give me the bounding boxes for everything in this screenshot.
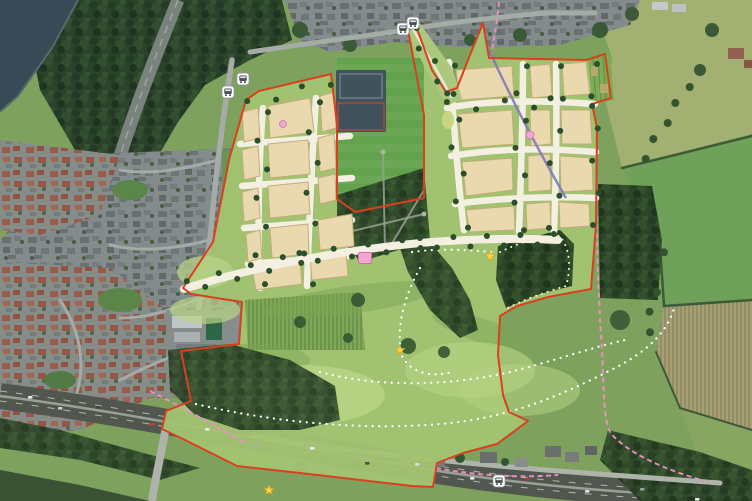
street-tree	[399, 237, 405, 243]
bus-stop-icon	[222, 86, 234, 98]
bus-stop-icon	[237, 73, 249, 85]
street-tree	[653, 268, 661, 276]
street-tree	[234, 276, 240, 282]
street-tree	[202, 284, 208, 290]
play-area-marker	[280, 121, 287, 128]
street-tree	[517, 232, 523, 238]
street-tree	[646, 308, 654, 316]
street-tree	[262, 281, 268, 287]
street-tree	[465, 225, 471, 231]
street-tree	[524, 63, 530, 69]
street-tree	[331, 246, 337, 252]
car	[58, 407, 63, 410]
street-tree	[253, 252, 259, 258]
street-tree	[452, 63, 458, 69]
street-tree	[216, 270, 222, 276]
street-tree	[328, 82, 334, 88]
street-tree	[184, 278, 190, 284]
car	[310, 447, 315, 450]
aerial-map-canvas	[0, 0, 752, 501]
car	[470, 477, 475, 480]
street-tree	[304, 190, 310, 196]
car	[525, 478, 530, 481]
street-tree	[596, 190, 602, 196]
car	[205, 428, 210, 431]
bus-stop-icon	[493, 475, 505, 487]
play-area-marker	[359, 253, 372, 264]
street-tree	[595, 125, 601, 131]
street-tree	[589, 103, 595, 109]
street-tree	[502, 97, 508, 103]
street-tree	[588, 93, 594, 99]
car	[695, 498, 700, 501]
car	[255, 443, 260, 446]
street-tree	[646, 328, 654, 336]
street-tree	[649, 135, 657, 143]
car	[585, 490, 590, 493]
street-tree	[273, 97, 279, 103]
street-tree	[664, 119, 672, 127]
street-tree	[417, 235, 423, 241]
street-tree	[523, 118, 529, 124]
street-tree	[444, 99, 450, 105]
street-tree	[248, 262, 254, 268]
street-tree	[547, 160, 553, 166]
street-tree	[266, 268, 272, 274]
play-area-marker	[526, 131, 534, 139]
street-tree	[548, 95, 554, 101]
street-tree	[265, 109, 271, 115]
street-tree	[534, 242, 540, 248]
street-tree	[416, 46, 422, 52]
street-tree	[310, 281, 316, 287]
car	[640, 488, 645, 491]
street-tree	[349, 254, 355, 260]
street-tree	[255, 138, 261, 144]
street-tree	[590, 222, 596, 228]
street-tree	[522, 172, 528, 178]
street-tree	[642, 155, 650, 163]
street-tree	[551, 231, 557, 237]
street-tree	[558, 63, 564, 69]
car	[28, 396, 33, 399]
street-tree	[589, 158, 595, 164]
street-tree	[473, 106, 479, 112]
street-tree	[263, 224, 269, 230]
car	[365, 462, 370, 465]
masterplan-aerial-image	[0, 0, 752, 501]
street-tree	[531, 105, 537, 111]
street-tree	[660, 248, 668, 256]
street-tree	[434, 79, 440, 85]
street-tree	[453, 198, 459, 204]
street-tree	[312, 221, 318, 227]
car	[96, 406, 101, 409]
car	[150, 423, 155, 426]
street-tree	[383, 249, 389, 255]
street-tree	[461, 171, 467, 177]
street-tree	[456, 117, 462, 123]
street-tree	[434, 245, 440, 251]
street-tree	[594, 61, 600, 67]
street-tree	[560, 96, 566, 102]
street-tree	[514, 90, 520, 96]
street-tree	[449, 144, 455, 150]
street-tree	[484, 233, 490, 239]
street-tree	[365, 242, 371, 248]
street-tree	[686, 83, 694, 91]
street-tree	[315, 160, 321, 166]
bus-stop-icon	[407, 17, 419, 29]
street-tree	[254, 195, 260, 201]
street-tree	[298, 260, 304, 266]
street-tree	[546, 225, 552, 231]
car	[415, 463, 420, 466]
street-tree	[451, 91, 457, 97]
street-tree	[432, 58, 438, 64]
street-tree	[521, 227, 527, 233]
street-tree	[512, 200, 518, 206]
street-tree	[444, 90, 450, 96]
street-tree	[244, 98, 250, 104]
street-tree	[301, 251, 307, 257]
street-tree	[556, 193, 562, 199]
street-tree	[653, 288, 661, 296]
street-tree	[315, 258, 321, 264]
street-tree	[501, 243, 507, 249]
street-tree	[557, 128, 563, 134]
street-tree	[299, 83, 305, 89]
street-tree	[450, 234, 456, 240]
street-tree	[467, 244, 473, 250]
street-tree	[317, 99, 323, 105]
street-tree	[418, 245, 424, 251]
tennis-courts	[336, 70, 386, 132]
street-tree	[280, 254, 286, 260]
street-tree	[306, 129, 312, 135]
street-tree	[671, 99, 679, 107]
street-tree	[513, 145, 519, 151]
street-tree	[264, 166, 270, 172]
